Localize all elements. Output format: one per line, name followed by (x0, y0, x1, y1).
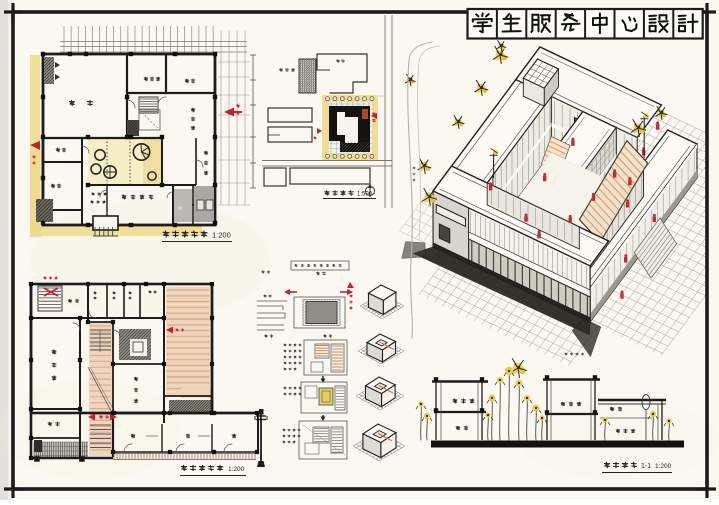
svg-text:w: w (177, 206, 183, 212)
svg-text:1-1: 1-1 (641, 463, 651, 470)
svg-text:1:200: 1:200 (228, 466, 245, 473)
svg-text:1:200: 1:200 (212, 231, 231, 240)
svg-text:1:200: 1:200 (655, 463, 672, 470)
